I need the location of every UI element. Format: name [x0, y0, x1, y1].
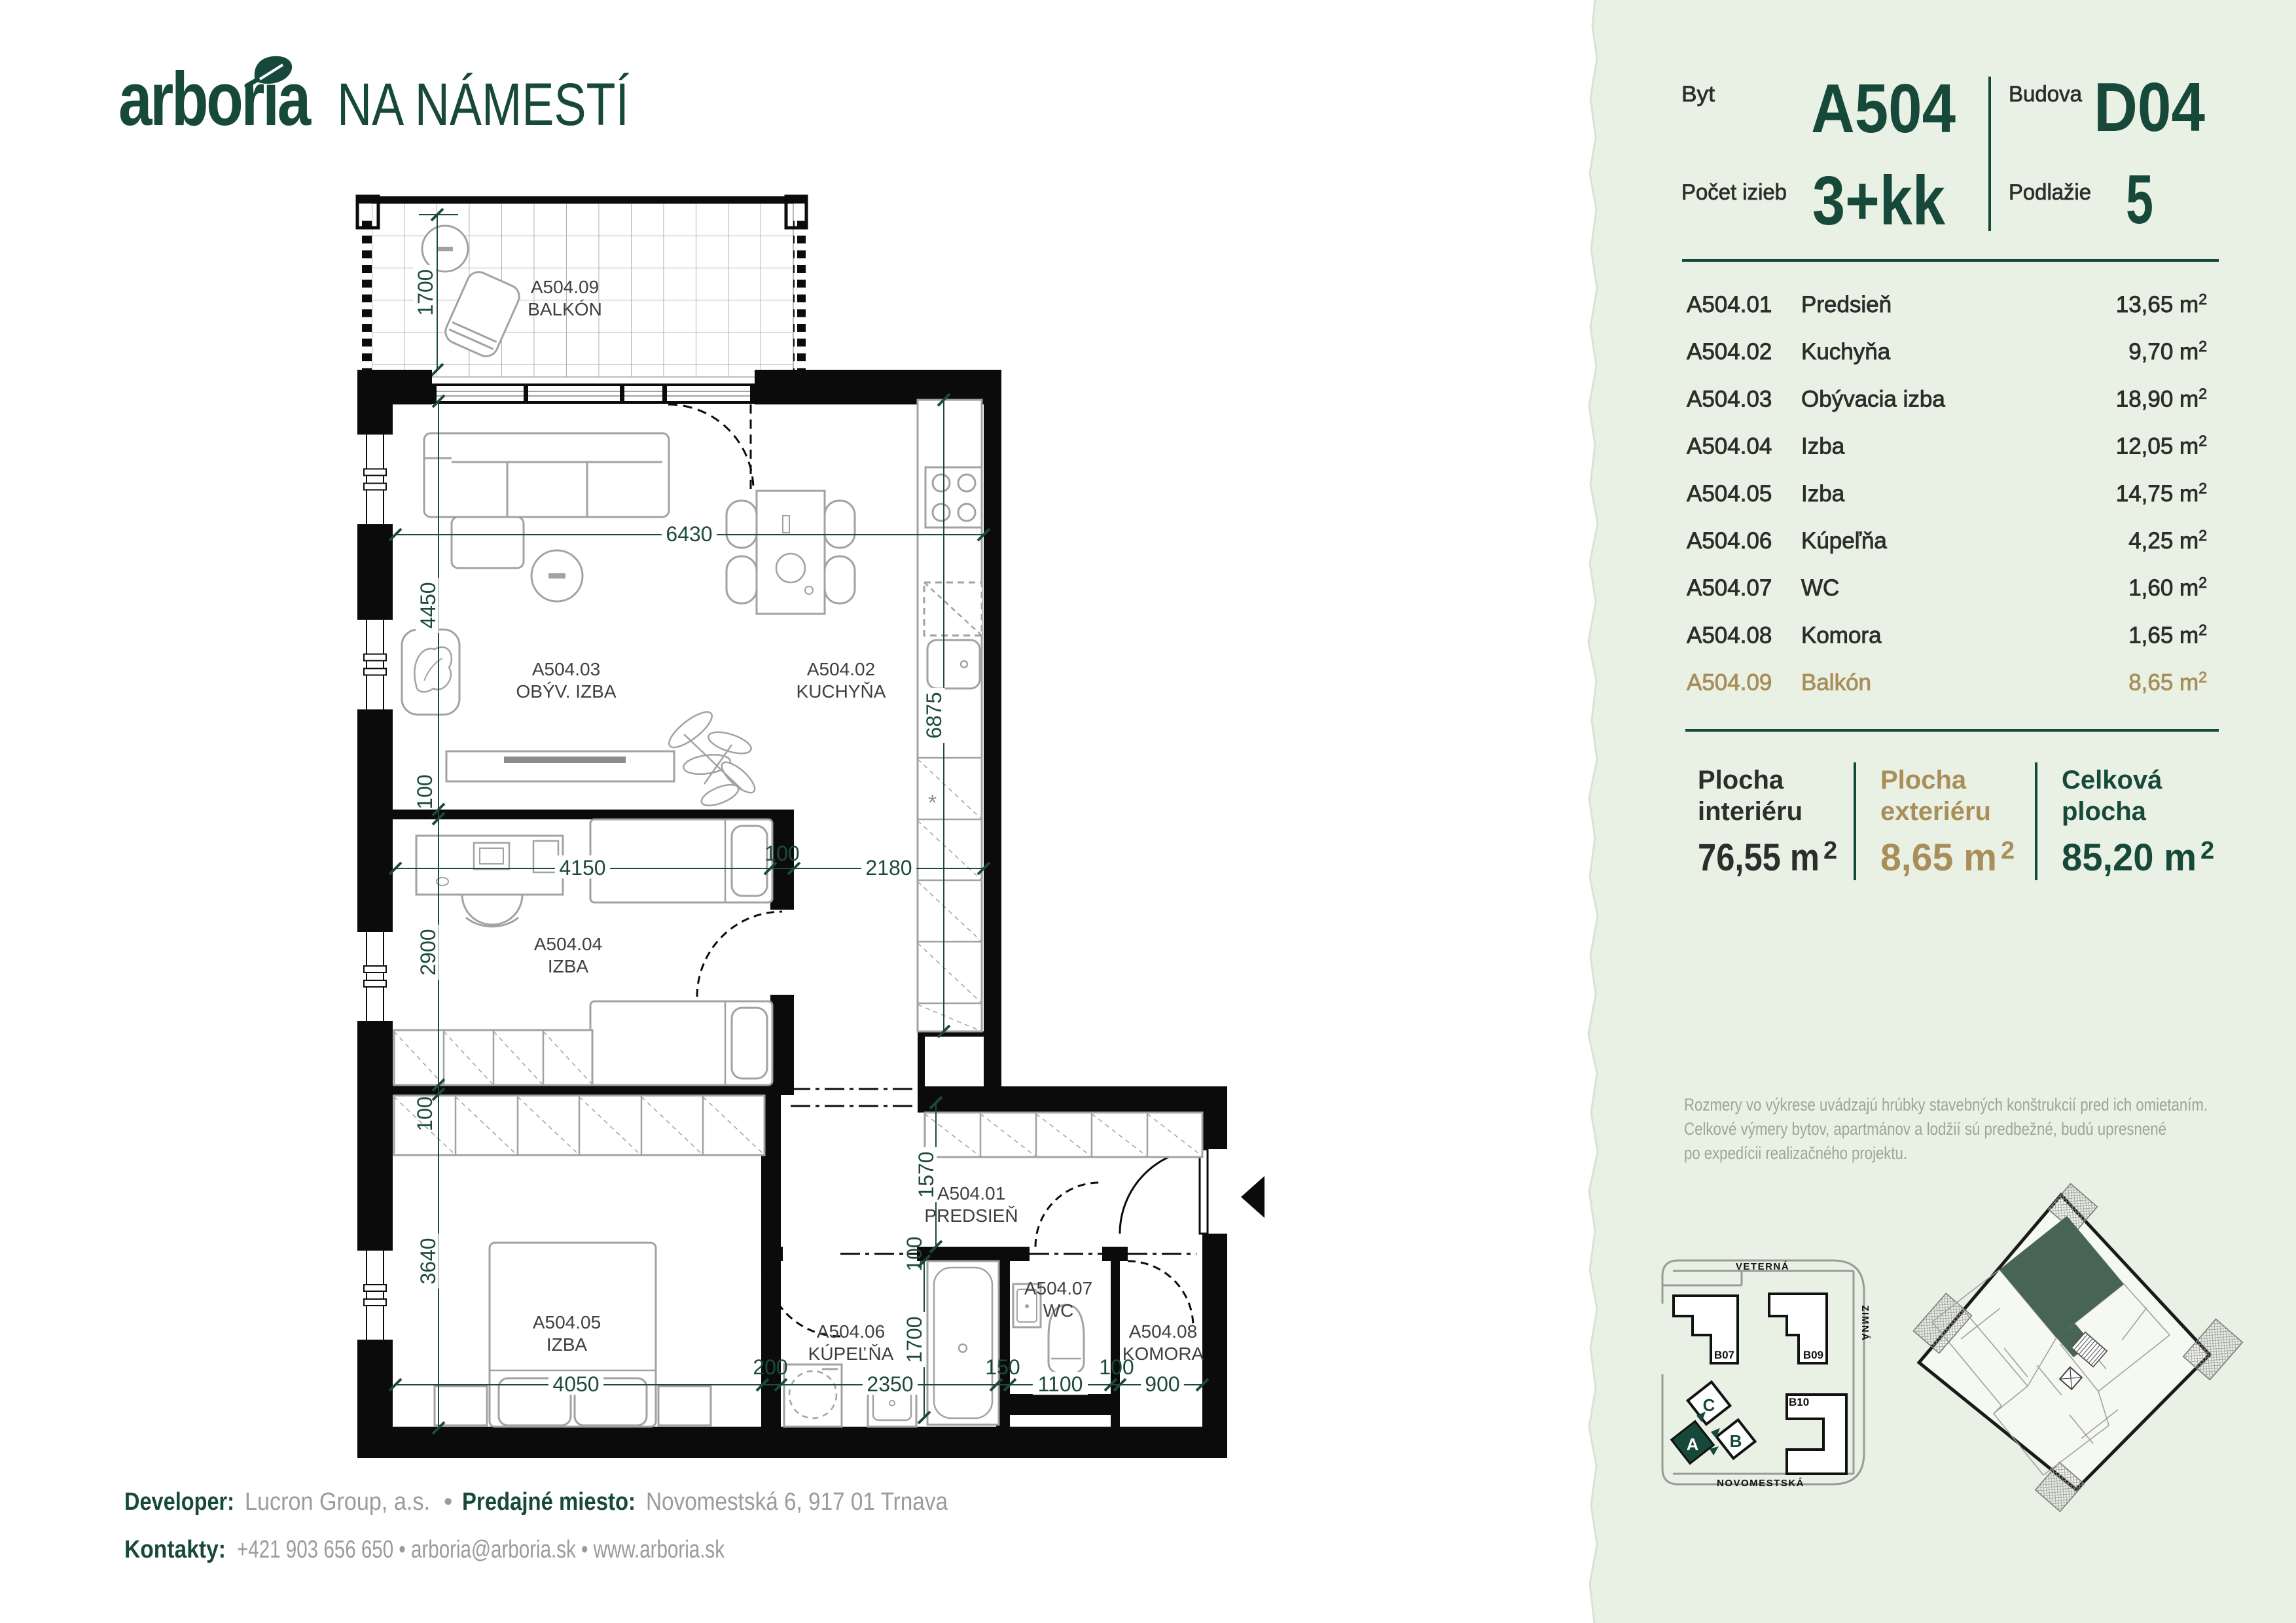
svg-text:A504.01: A504.01 — [937, 1183, 1005, 1204]
svg-text:Lucron Group, a.s.: Lucron Group, a.s. — [245, 1488, 430, 1516]
svg-text:Izba: Izba — [1801, 481, 1845, 507]
svg-text:D04: D04 — [2094, 69, 2205, 146]
svg-text:8,65 m: 8,65 m — [1880, 836, 1997, 879]
svg-text:900: 900 — [1145, 1372, 1179, 1396]
svg-text:Plocha: Plocha — [1698, 766, 1784, 794]
svg-text:Predajné miesto:: Predajné miesto: — [462, 1488, 636, 1516]
svg-text:A504.08: A504.08 — [1129, 1321, 1197, 1342]
svg-text:100: 100 — [764, 842, 799, 865]
svg-text:2350: 2350 — [867, 1372, 913, 1396]
svg-text:14,75 m2: 14,75 m2 — [2116, 480, 2207, 507]
svg-text:A504.06: A504.06 — [1687, 528, 1772, 554]
svg-text:4050: 4050 — [552, 1372, 599, 1396]
svg-text:+421 903 656 650 • arboria@arb: +421 903 656 650 • arboria@arboria.sk • … — [237, 1536, 725, 1563]
svg-text:100: 100 — [413, 1096, 437, 1131]
svg-text:Celkové výmery bytov, apartmán: Celkové výmery bytov, apartmánov a lodži… — [1684, 1119, 2166, 1139]
svg-text:Budova: Budova — [2009, 82, 2082, 107]
svg-text:A504.06: A504.06 — [817, 1321, 885, 1342]
svg-text:76,55 m: 76,55 m — [1698, 836, 1820, 879]
svg-text:•: • — [444, 1488, 452, 1516]
svg-text:2180: 2180 — [865, 856, 912, 880]
svg-text:*: * — [928, 791, 937, 815]
svg-text:8,65 m2: 8,65 m2 — [2128, 669, 2207, 696]
svg-text:A504.01: A504.01 — [1687, 292, 1772, 317]
svg-text:2: 2 — [1823, 837, 1837, 865]
svg-text:Komora: Komora — [1801, 622, 1882, 648]
svg-text:2: 2 — [2200, 837, 2214, 865]
svg-text:A504.08: A504.08 — [1687, 622, 1772, 648]
svg-text:A: A — [1687, 1435, 1699, 1454]
svg-text:A504.05: A504.05 — [533, 1312, 601, 1332]
svg-text:Kontakty:: Kontakty: — [124, 1536, 226, 1563]
svg-text:A504: A504 — [1811, 70, 1956, 147]
svg-text:NA NÁMESTÍ: NA NÁMESTÍ — [337, 71, 629, 138]
svg-text:6875: 6875 — [922, 692, 946, 738]
svg-text:Podlažie: Podlažie — [2009, 180, 2091, 205]
svg-text:BALKÓN: BALKÓN — [528, 299, 602, 319]
svg-text:Developer:: Developer: — [124, 1488, 234, 1516]
svg-text:100: 100 — [903, 1236, 926, 1271]
svg-text:A504.03: A504.03 — [1687, 386, 1772, 412]
svg-text:KUCHYŇA: KUCHYŇA — [797, 681, 886, 702]
svg-text:A504.05: A504.05 — [1687, 481, 1772, 507]
svg-text:A504.07: A504.07 — [1024, 1278, 1092, 1298]
svg-text:150: 150 — [985, 1355, 1020, 1379]
svg-text:plocha: plocha — [2062, 797, 2147, 826]
svg-text:1570: 1570 — [914, 1151, 938, 1198]
svg-text:A504.03: A504.03 — [532, 659, 600, 679]
svg-text:NOVOMESTSKÁ: NOVOMESTSKÁ — [1717, 1478, 1804, 1489]
svg-text:VETERNÁ: VETERNÁ — [1736, 1261, 1789, 1272]
svg-text:A504.07: A504.07 — [1687, 575, 1772, 601]
svg-text:IZBA: IZBA — [547, 1334, 588, 1355]
svg-text:Izba: Izba — [1801, 434, 1845, 459]
svg-text:1,65 m2: 1,65 m2 — [2128, 621, 2207, 648]
svg-text:PREDSIEŇ: PREDSIEŇ — [924, 1205, 1018, 1226]
svg-text:A504.02: A504.02 — [807, 659, 875, 679]
svg-text:IZBA: IZBA — [548, 956, 589, 976]
svg-text:9,70 m2: 9,70 m2 — [2128, 338, 2207, 365]
svg-text:12,05 m2: 12,05 m2 — [2116, 433, 2207, 459]
svg-text:A504.04: A504.04 — [1687, 434, 1772, 459]
svg-text:Obývacia izba: Obývacia izba — [1801, 386, 1945, 412]
svg-text:Balkón: Balkón — [1801, 670, 1871, 696]
svg-text:WC: WC — [1801, 575, 1839, 601]
svg-text:5: 5 — [2126, 161, 2153, 238]
svg-text:200: 200 — [753, 1355, 787, 1379]
svg-text:KOMORA: KOMORA — [1122, 1344, 1204, 1364]
svg-text:2900: 2900 — [416, 929, 440, 975]
svg-text:Predsieň: Predsieň — [1801, 292, 1892, 317]
svg-text:Byt: Byt — [1681, 82, 1715, 107]
svg-text:po expedícii realizačného proj: po expedícii realizačného projektu. — [1684, 1143, 1907, 1163]
svg-text:KÚPEĽŇA: KÚPEĽŇA — [808, 1344, 894, 1364]
svg-text:4150: 4150 — [559, 856, 605, 880]
svg-text:Plocha: Plocha — [1880, 766, 1967, 794]
svg-text:ZIMNÁ: ZIMNÁ — [1859, 1306, 1871, 1342]
svg-text:Kúpeľňa: Kúpeľňa — [1801, 528, 1887, 554]
svg-text:WC: WC — [1043, 1300, 1074, 1321]
svg-text:18,90 m2: 18,90 m2 — [2116, 385, 2207, 412]
svg-text:13,65 m2: 13,65 m2 — [2116, 291, 2207, 317]
svg-text:B09: B09 — [1803, 1349, 1823, 1361]
svg-text:1700: 1700 — [414, 269, 437, 315]
svg-text:A504.02: A504.02 — [1687, 339, 1772, 365]
svg-text:4450: 4450 — [416, 582, 440, 628]
svg-text:3640: 3640 — [416, 1238, 440, 1284]
svg-text:Rozmery vo výkrese uvádzajú hr: Rozmery vo výkrese uvádzajú hrúbky stave… — [1684, 1095, 2208, 1115]
svg-text:85,20 m: 85,20 m — [2062, 836, 2197, 879]
svg-text:B07: B07 — [1714, 1349, 1734, 1361]
svg-text:4,25 m2: 4,25 m2 — [2128, 527, 2207, 554]
svg-text:1700: 1700 — [903, 1316, 926, 1363]
svg-text:A504.09: A504.09 — [531, 277, 599, 297]
svg-text:interiéru: interiéru — [1698, 797, 1803, 826]
svg-text:B: B — [1730, 1431, 1742, 1451]
svg-text:A504.04: A504.04 — [534, 934, 602, 954]
svg-text:A504.09: A504.09 — [1687, 670, 1772, 696]
svg-text:Kuchyňa: Kuchyňa — [1801, 339, 1891, 365]
svg-text:Celková: Celková — [2062, 766, 2162, 794]
svg-text:B10: B10 — [1789, 1396, 1809, 1408]
svg-text:2: 2 — [2001, 837, 2015, 865]
svg-text:1100: 1100 — [1038, 1372, 1083, 1396]
svg-text:Počet izieb: Počet izieb — [1681, 180, 1787, 205]
svg-text:6430: 6430 — [666, 522, 712, 546]
svg-text:OBÝV. IZBA: OBÝV. IZBA — [516, 681, 616, 702]
svg-text:Novomestská 6, 917 01 Trnava: Novomestská 6, 917 01 Trnava — [646, 1488, 948, 1516]
svg-text:exteriéru: exteriéru — [1880, 797, 1991, 826]
svg-text:3+kk: 3+kk — [1812, 162, 1946, 240]
svg-text:100: 100 — [413, 774, 437, 809]
svg-text:C: C — [1703, 1395, 1715, 1415]
svg-text:1,60 m2: 1,60 m2 — [2128, 574, 2207, 601]
